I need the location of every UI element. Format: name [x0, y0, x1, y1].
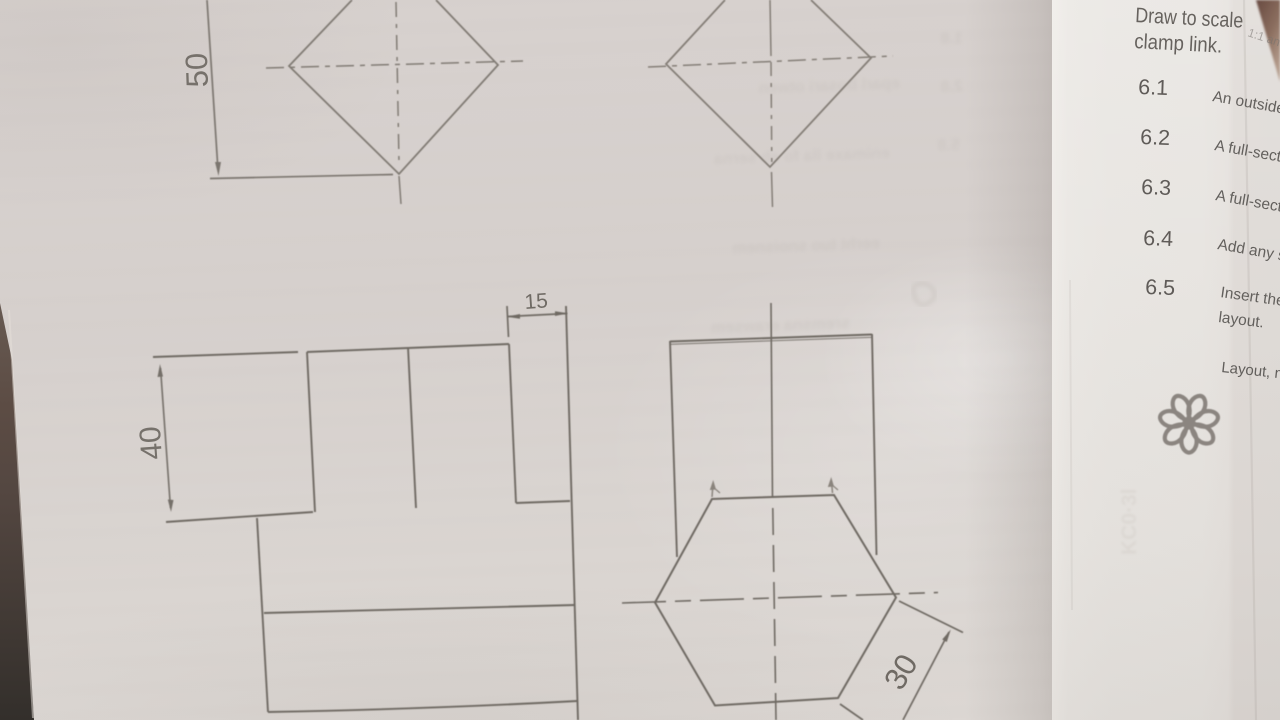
svg-text:5.8: 5.8	[937, 137, 960, 155]
svg-text:eparl bosari otwen: eparl bosari otwen	[758, 75, 900, 97]
svg-text:clamp link.: clamp link.	[1134, 30, 1223, 58]
svg-text:eerht tuo snoisnem: eerht tuo snoisnem	[732, 235, 880, 257]
svg-text:30: 30	[877, 648, 925, 696]
svg-text:15: 15	[524, 289, 549, 314]
svg-text:2.8: 2.8	[940, 78, 963, 96]
svg-text:layout.: layout.	[1218, 309, 1265, 331]
svg-text:6.1: 6.1	[1138, 75, 1169, 100]
svg-text:Draw to scale: Draw to scale	[1135, 4, 1244, 33]
svg-text:40: 40	[134, 425, 169, 461]
svg-text:enimaxe lla fo eb serna: enimaxe lla fo eb serna	[713, 145, 890, 168]
svg-text:6.3: 6.3	[1141, 175, 1172, 200]
svg-text:50: 50	[179, 52, 215, 88]
svg-text:sremsna erawsem: sremsna erawsem	[711, 315, 850, 337]
svg-text:6.4: 6.4	[1143, 226, 1174, 251]
svg-text:1.8: 1.8	[940, 30, 963, 48]
svg-text:6.5: 6.5	[1145, 275, 1176, 300]
svg-text:6.2: 6.2	[1140, 125, 1171, 150]
svg-text:KC0·3l: KC0·3l	[1118, 488, 1141, 555]
